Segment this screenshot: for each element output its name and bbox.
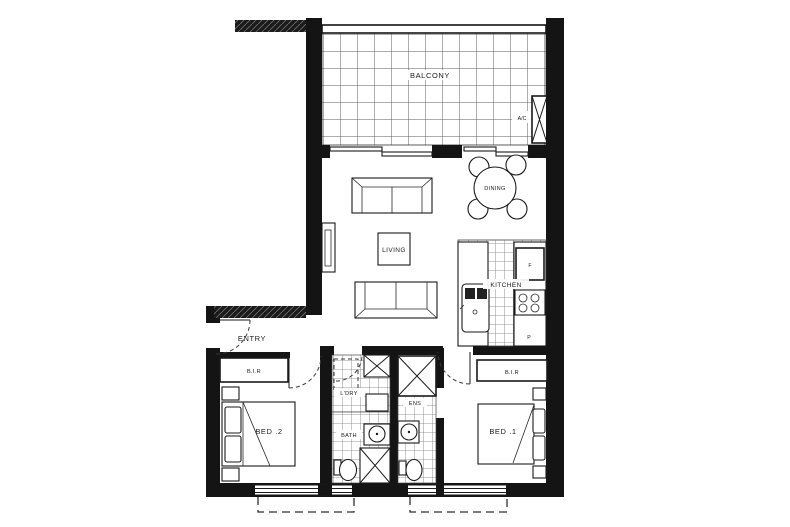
entry-label: ENTRY xyxy=(238,334,266,343)
living-label: LIVING xyxy=(382,247,406,254)
balcony-tiles xyxy=(322,33,546,145)
bath-area: BATH xyxy=(332,412,390,483)
laundry-area: L'DRY xyxy=(332,355,390,412)
wall-ens-right-upper xyxy=(436,348,444,388)
ens-label: ENS xyxy=(409,401,421,407)
wall-bed2-top xyxy=(206,352,290,358)
wall-divider-mid xyxy=(432,145,462,158)
bed2-robe-label: B.I.R xyxy=(247,369,261,375)
dining-label: DINING xyxy=(484,186,505,192)
wall-upper-left xyxy=(306,18,322,315)
kitchen-area: F P KITCHEN xyxy=(458,240,546,346)
sofa-bottom xyxy=(355,282,437,318)
ac-label: A/C xyxy=(518,116,527,122)
bath-label: BATH xyxy=(341,433,357,439)
wall-right xyxy=(546,18,564,497)
fridge-label: F xyxy=(528,263,531,269)
kitchen-sink xyxy=(460,284,489,332)
wall-bath-ens xyxy=(390,348,398,483)
laundry-label: L'DRY xyxy=(340,391,357,397)
floor-plan: BALCONY A/C xyxy=(0,0,790,527)
wall-hall-mid xyxy=(362,346,443,355)
ens-vanity xyxy=(398,421,419,443)
bed1-side-table xyxy=(533,466,546,478)
bath-vanity xyxy=(364,424,390,445)
bed1-robe-label: B.I.R xyxy=(505,370,519,376)
bed2-side-table xyxy=(222,387,239,400)
pantry-label: P xyxy=(527,335,531,341)
ens-shower xyxy=(398,356,436,396)
bed2-side-table xyxy=(222,468,239,481)
bed1-side-table xyxy=(533,388,546,400)
wall-ens-right-lower xyxy=(436,418,444,483)
wall-entry xyxy=(214,306,306,318)
wall-left-lower xyxy=(206,348,220,497)
balcony-label: BALCONY xyxy=(410,71,450,80)
ensuite-area: ENS xyxy=(398,356,436,483)
balcony-railing xyxy=(322,25,546,33)
bed2-label: BED .2 xyxy=(255,427,282,436)
kitchen-label: KITCHEN xyxy=(490,282,521,289)
balcony-area: BALCONY A/C xyxy=(322,25,547,145)
washing-machine xyxy=(364,355,390,377)
sofa-top xyxy=(352,178,432,213)
wall-laundry-left xyxy=(320,348,332,497)
wall-hall-right xyxy=(473,346,546,355)
cooktop xyxy=(515,290,545,315)
bed1-label: BED .1 xyxy=(489,427,516,436)
wall-top-stub xyxy=(235,20,312,32)
laundry-tub xyxy=(366,394,388,411)
bath-shower xyxy=(360,448,390,483)
